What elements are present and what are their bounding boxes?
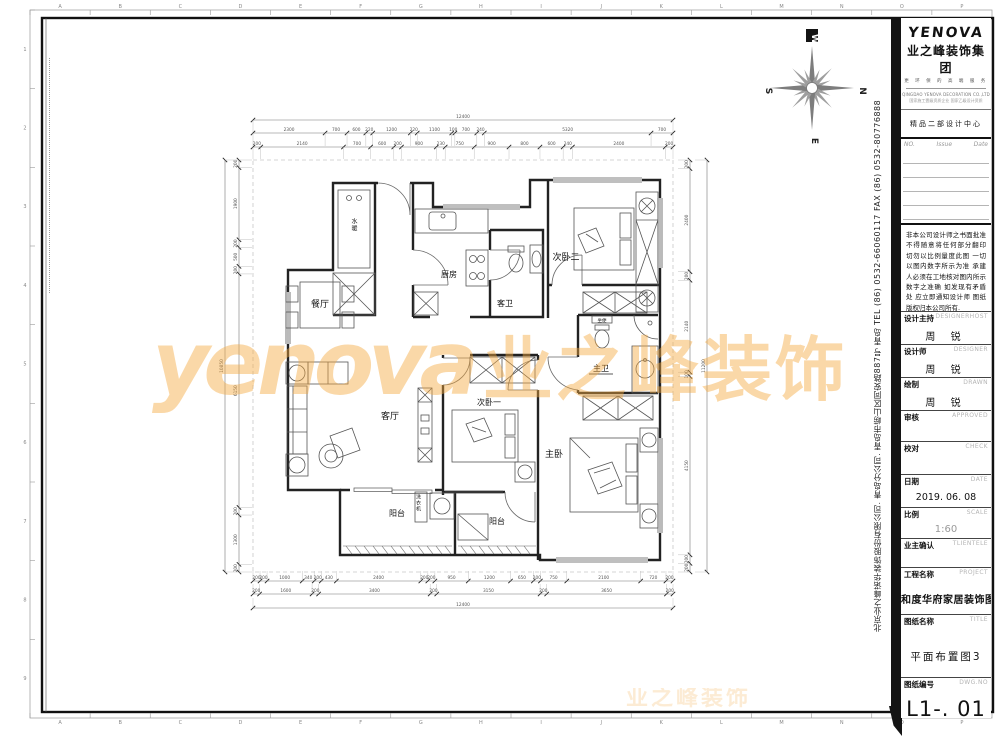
svg-text:700: 700 (353, 141, 361, 147)
svg-text:J: J (599, 720, 601, 726)
svg-text:200: 200 (427, 575, 435, 581)
titleblock-field-scale: 比例SCALE1:60 (901, 507, 991, 538)
svg-text:900: 900 (415, 141, 423, 147)
svg-text:200: 200 (233, 564, 239, 572)
issue-row (903, 150, 989, 164)
svg-text:200: 200 (233, 266, 239, 274)
svg-text:12400: 12400 (456, 114, 470, 120)
svg-text:750: 750 (456, 141, 464, 147)
svg-text:720: 720 (649, 575, 657, 581)
svg-text:200: 200 (665, 141, 673, 147)
svg-text:700: 700 (462, 127, 470, 133)
svg-text:200: 200 (233, 239, 239, 247)
svg-text:C: C (179, 720, 183, 726)
svg-text:2400: 2400 (373, 575, 384, 581)
svg-text:200: 200 (684, 563, 690, 571)
dim-chain: 11200 (695, 158, 709, 574)
svg-text:D: D (239, 4, 243, 10)
svg-text:100: 100 (449, 127, 457, 133)
compass-east: E (809, 138, 819, 144)
dim-chain: 2002001000340200430240020020095012006502… (251, 571, 675, 583)
doors (378, 183, 582, 522)
compass-south: S (763, 88, 773, 94)
svg-text:200: 200 (665, 575, 673, 581)
svg-text:G: G (419, 720, 423, 726)
titleblock-field-title: 图纸名称TITLE平面布置图3 (901, 614, 991, 677)
svg-text:F: F (359, 4, 362, 10)
dim-chain: 200240020021401004150200200 (678, 158, 692, 574)
svg-text:F: F (359, 720, 362, 726)
svg-text:3: 3 (23, 204, 26, 210)
svg-text:8: 8 (23, 598, 26, 604)
room-label-master-bath: 主卫 (593, 363, 609, 373)
room-label-bedroom1: 次卧一 (477, 397, 501, 407)
svg-text:6150: 6150 (233, 385, 239, 396)
titleblock-field-approved: 审核APPROVED (901, 410, 991, 441)
titleblock-field-dwg.no: 图纸编号DWG.NOL1-. 01 (901, 677, 991, 724)
svg-text:2: 2 (23, 126, 26, 132)
sheet-rulers: AABBCCDDEEFFGGHHIIJJKKLLMMNNOOPP12345678… (23, 4, 963, 726)
svg-text:200: 200 (233, 159, 239, 167)
svg-text:5: 5 (23, 362, 26, 368)
issue-table-rows (901, 150, 991, 220)
svg-text:2400: 2400 (684, 214, 690, 225)
svg-text:600: 600 (378, 141, 386, 147)
svg-text:J: J (599, 4, 601, 10)
svg-text:340: 340 (304, 575, 312, 581)
company-logo: YENOVA 业之峰装饰集团 更 环 保 的 高 端 服 务 QINGDAO Y… (901, 18, 991, 104)
titleblock-divider-bar (891, 18, 901, 712)
svg-text:600: 600 (352, 127, 360, 133)
room-label-balcony2: 阳台 (489, 516, 505, 526)
titleblock-field-tlientele: 业主确认TLIENTELE (901, 538, 991, 567)
svg-text:950: 950 (447, 575, 455, 581)
svg-text:800: 800 (520, 141, 528, 147)
titleblock-fields: 设计主持DESIGNERHOST周 锐设计师DESIGNER周 锐绘制DRAWN… (901, 311, 991, 724)
svg-text:230: 230 (437, 141, 445, 147)
room-label-guest-bath: 客卫 (497, 298, 513, 308)
titleblock-field-drawn: 绘制DRAWN周 锐 (901, 377, 991, 410)
svg-text:B: B (118, 720, 122, 726)
svg-text:H: H (479, 4, 483, 10)
issue-row (903, 178, 989, 192)
svg-text:650: 650 (518, 575, 526, 581)
svg-text:1300: 1300 (233, 534, 239, 545)
svg-text:N: N (840, 720, 844, 726)
plot-boundary (253, 160, 673, 572)
svg-text:200: 200 (533, 575, 541, 581)
svg-text:600: 600 (547, 141, 555, 147)
svg-text:9: 9 (23, 676, 26, 682)
svg-text:5320: 5320 (562, 127, 573, 133)
svg-text:A: A (58, 4, 62, 10)
svg-text:O: O (900, 4, 904, 10)
svg-text:1000: 1000 (279, 575, 290, 581)
issue-row (903, 192, 989, 206)
svg-text:H: H (479, 720, 483, 726)
svg-text:L: L (720, 720, 723, 726)
svg-text:200: 200 (539, 588, 547, 594)
svg-text:L: L (720, 4, 723, 10)
issue-table-header: NO. Issue Date (901, 137, 991, 150)
room-label-master-bedroom: 主卧 (545, 448, 563, 460)
svg-text:4150: 4150 (684, 460, 690, 471)
svg-text:220: 220 (365, 127, 373, 133)
issue-row (903, 206, 989, 220)
svg-text:240: 240 (476, 127, 484, 133)
svg-text:200: 200 (429, 588, 437, 594)
svg-text:2140: 2140 (684, 321, 690, 332)
room-label-toilet: 坐便 (598, 317, 607, 324)
svg-text:1200: 1200 (484, 575, 495, 581)
svg-text:12400: 12400 (456, 602, 470, 608)
floorplan-drawing: 餐厅 厨房 客卫 次卧二 主卫 坐便 客厅 次卧一 主卧 阳台 阳台 12400… (0, 0, 1000, 750)
svg-text:3650: 3650 (601, 588, 612, 594)
titleblock-field-designer: 设计师DESIGNER周 锐 (901, 344, 991, 377)
svg-text:2100: 2100 (598, 575, 609, 581)
svg-text:D: D (239, 720, 243, 726)
railing-hatch (343, 546, 536, 554)
svg-text:K: K (660, 4, 664, 10)
compass-rose: WNES (763, 29, 867, 144)
titleblock-field-designerhost: 设计主持DESIGNERHOST周 锐 (901, 311, 991, 344)
svg-text:220: 220 (410, 127, 418, 133)
titleblock-field-project: 工程名称PROJECT和度华府家居装饰图 (901, 567, 991, 614)
company-side-text: 北京业之峰诺华装饰股份有限公司. 青岛分公司. 青岛市崂山区同安路887号 青岛… (872, 22, 889, 710)
compass-west: W (809, 34, 819, 44)
svg-text:M: M (779, 720, 783, 726)
svg-text:2300: 2300 (284, 127, 295, 133)
svg-text:4: 4 (23, 283, 26, 289)
svg-text:E: E (299, 4, 302, 10)
brand-wordmark: YENOVA (900, 25, 992, 41)
room-label-kitchen: 厨房 (441, 269, 457, 279)
design-department: 精品二部设计中心 (901, 109, 991, 137)
svg-text:700: 700 (332, 127, 340, 133)
svg-text:10850: 10850 (219, 359, 225, 373)
company-name-en: QINGDAO YENOVA DECORATION CO.,LTD (901, 92, 991, 97)
issue-issue-header: Issue (937, 141, 953, 148)
company-cert: 国家施工壹级资质企业 国家乙级设计资质 (901, 98, 991, 104)
svg-text:C: C (179, 4, 183, 10)
svg-text:500: 500 (233, 252, 239, 260)
svg-text:200: 200 (259, 575, 267, 581)
company-name-cn: 业之峰装饰集团 (901, 42, 991, 76)
svg-text:900: 900 (488, 141, 496, 147)
svg-text:1: 1 (23, 47, 26, 53)
svg-text:200: 200 (314, 575, 322, 581)
svg-text:E: E (299, 720, 302, 726)
svg-text:200: 200 (684, 160, 690, 168)
svg-text:200: 200 (233, 507, 239, 515)
svg-text:M: M (779, 4, 783, 10)
svg-text:3400: 3400 (369, 588, 380, 594)
compass-north: N (857, 87, 867, 95)
svg-text:430: 430 (325, 575, 333, 581)
svg-text:G: G (419, 4, 423, 10)
svg-text:I: I (540, 720, 541, 726)
svg-text:1200: 1200 (386, 127, 397, 133)
svg-text:200: 200 (394, 141, 402, 147)
svg-text:7: 7 (23, 519, 26, 525)
dim-chain: 200190020050020061502001300200 (233, 158, 252, 574)
titleblock-field-check: 校对CHECK (901, 441, 991, 474)
label-washer: 洗衣机 (415, 494, 422, 512)
svg-text:2400: 2400 (613, 141, 624, 147)
title-block: YENOVA 业之峰装饰集团 更 环 保 的 高 端 服 务 QINGDAO Y… (901, 18, 991, 718)
svg-text:6: 6 (23, 440, 26, 446)
dim-chain: 2002140700600200900230750900800600240240… (251, 141, 675, 159)
svg-text:200: 200 (253, 141, 261, 147)
label-water-heater: 水暖 (349, 218, 358, 232)
svg-text:K: K (660, 720, 664, 726)
svg-text:1900: 1900 (233, 198, 239, 209)
svg-text:200: 200 (684, 272, 690, 280)
svg-text:B: B (118, 4, 122, 10)
svg-text:100: 100 (684, 370, 690, 378)
generated-annotations: 1240023007006002201200220110010070024053… (23, 4, 963, 726)
svg-text:200: 200 (684, 555, 690, 563)
room-label-living: 客厅 (381, 410, 399, 422)
issue-row (903, 164, 989, 178)
svg-text:A: A (58, 720, 62, 726)
svg-text:200: 200 (311, 588, 319, 594)
company-tagline: 更 环 保 的 高 端 服 务 (901, 78, 991, 84)
dim-chain: 2001600200340020031502003650200 (251, 584, 675, 596)
svg-text:2140: 2140 (297, 141, 308, 147)
svg-text:1600: 1600 (280, 588, 291, 594)
svg-text:750: 750 (549, 575, 557, 581)
room-label-balcony1: 阳台 (389, 508, 405, 518)
issue-no-header: NO. (904, 141, 915, 148)
dim-chain: 12400 (251, 598, 675, 610)
svg-text:200: 200 (666, 588, 674, 594)
copyright-disclaimer: 非本公司设计师之书面批准不得随意将任何部分翻印 切勿以比例量度此图 一切以图内数… (901, 223, 991, 311)
svg-text:200: 200 (252, 588, 260, 594)
svg-text:700: 700 (658, 127, 666, 133)
issue-date-header: Date (974, 141, 988, 148)
svg-text:P: P (960, 4, 963, 10)
sheet-margin-note (49, 58, 50, 293)
room-label-bedroom2: 次卧二 (552, 251, 579, 263)
svg-text:I: I (540, 4, 541, 10)
svg-text:N: N (840, 4, 844, 10)
svg-text:3150: 3150 (483, 588, 494, 594)
svg-text:240: 240 (564, 141, 572, 147)
svg-text:1100: 1100 (429, 127, 440, 133)
room-label-dining: 餐厅 (311, 298, 329, 310)
svg-text:11200: 11200 (701, 359, 707, 373)
titleblock-field-date: 日期DATE2019. 06. 08 (901, 474, 991, 507)
